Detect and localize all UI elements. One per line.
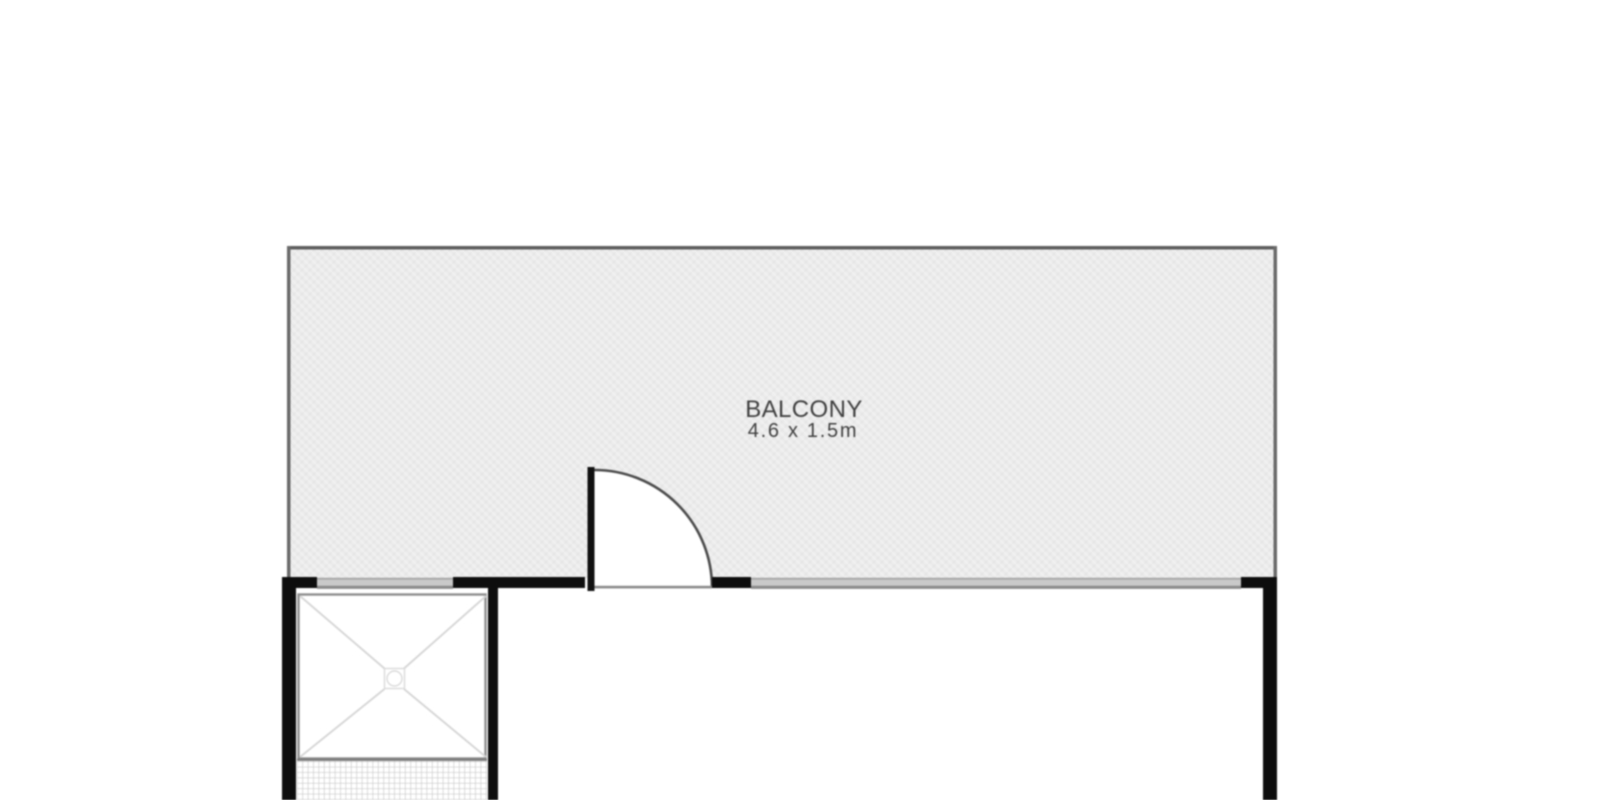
svg-text:BALCONY: BALCONY xyxy=(745,396,863,423)
svg-text:4.6 x 1.5m: 4.6 x 1.5m xyxy=(748,420,858,442)
